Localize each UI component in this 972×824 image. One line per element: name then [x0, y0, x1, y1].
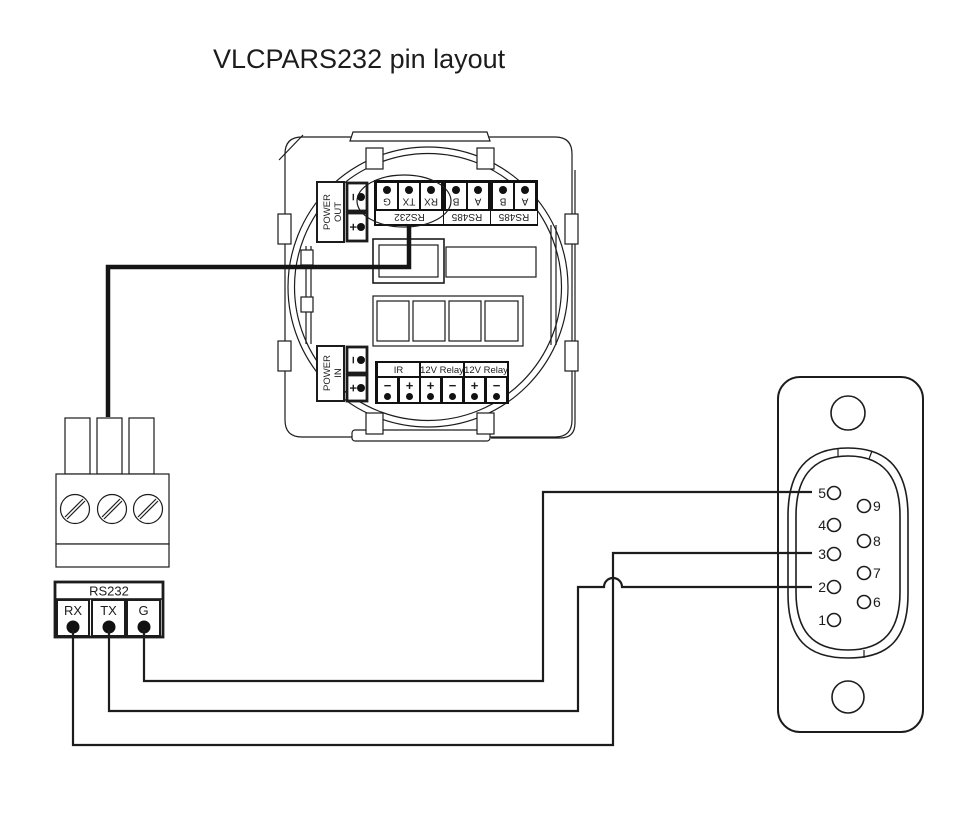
- db9-pin-hole-8: [858, 535, 871, 548]
- module-corner-chamfer: [279, 135, 303, 160]
- group-label-rs485-1: RS485: [451, 211, 482, 222]
- plug-pin-1: [65, 418, 90, 474]
- group-label-relay-2: 12V Relay: [464, 365, 508, 376]
- internal-slot-4: [485, 301, 518, 341]
- terminal-dot-g: [383, 186, 391, 194]
- terminal-label-g: G: [383, 196, 391, 207]
- relay1-minus-dot: [449, 393, 456, 400]
- rs232-breakout-block: RS232 RX TX G: [55, 582, 163, 637]
- right-side-tab-upper: [565, 214, 578, 244]
- right-side-tab-lower: [565, 341, 578, 371]
- group-label-rs485-2: RS485: [498, 211, 529, 222]
- diagram-title: VLCPARS232 pin layout: [213, 44, 506, 74]
- terminal-dot-rx: [427, 186, 435, 194]
- power-out-plus-dot: [357, 223, 365, 231]
- relay1-minus-symbol: −: [449, 378, 457, 393]
- relay2-plus-symbol: +: [471, 378, 479, 393]
- rs232-rs485-terminal-strip: G TX RX B A B A RS232 RS485 RS485: [374, 180, 538, 226]
- group-label-relay-1: 12V Relay: [420, 365, 464, 376]
- terminal-dot-b1: [452, 186, 460, 194]
- relay2-minus-dot: [493, 393, 500, 400]
- db9-pin-number-4: 4: [818, 517, 826, 533]
- wire-rx-to-db9-pin3: [73, 553, 812, 745]
- db9-pin-hole-1: [828, 614, 841, 627]
- db9-pin-number-1: 1: [818, 612, 826, 628]
- db9-pin-hole-9: [858, 500, 871, 513]
- wiring-diagram-page: VLCPARS232 pin layout: [0, 0, 972, 824]
- bottom-hook-right: [477, 413, 494, 434]
- ir-plus-dot: [406, 393, 413, 400]
- terminal-dot-a2: [521, 186, 529, 194]
- ir-relay-terminal-strip: IR 12V Relay 12V Relay − + + − + −: [375, 361, 509, 404]
- top-hook-right: [477, 148, 494, 169]
- db9-pin-number-8: 8: [873, 533, 881, 549]
- ir-minus-symbol: −: [384, 378, 392, 393]
- screw-terminal-block: [56, 418, 169, 567]
- terminal-label-a2: A: [521, 196, 528, 207]
- internal-compartment-row: [373, 296, 523, 346]
- ir-plus-symbol: +: [406, 378, 414, 393]
- db9-pin-hole-6: [858, 596, 871, 609]
- db9-pin-number-6: 6: [873, 594, 881, 610]
- db9-pin-hole-4: [828, 519, 841, 532]
- db9-pin-number-3: 3: [818, 546, 826, 562]
- power-out-label-2: OUT: [333, 202, 344, 222]
- internal-slot-2: [413, 301, 445, 341]
- terminal-dot-a1: [474, 186, 482, 194]
- breakout-label-tx: TX: [100, 603, 117, 618]
- terminal-label-a1: A: [474, 196, 481, 207]
- power-out-label-1: POWER: [322, 194, 333, 230]
- internal-clip-upper: [301, 250, 313, 265]
- group-label-ir: IR: [394, 365, 404, 376]
- group-label-rs232: RS232: [394, 211, 425, 222]
- terminal-label-b1: B: [452, 196, 459, 207]
- db9-connector: 5 4 3 2 1 9 8 7 6: [778, 377, 923, 732]
- power-in-minus-dot: [357, 356, 365, 364]
- top-mounting-tab: [350, 132, 490, 141]
- internal-clip-lower: [301, 297, 313, 312]
- breakout-label-g: G: [138, 603, 148, 618]
- left-side-tab-lower: [278, 341, 291, 371]
- ir-minus-dot: [384, 393, 391, 400]
- power-in-label-1: POWER: [322, 355, 333, 391]
- db9-pin-number-5: 5: [818, 485, 826, 501]
- bottom-hook-left: [366, 413, 383, 434]
- plug-pin-2: [97, 418, 122, 474]
- db9-pin-number-2: 2: [818, 579, 826, 595]
- db9-pin-hole-3: [828, 548, 841, 561]
- terminal-label-tx: TX: [402, 196, 415, 207]
- power-out-block: POWER OUT − +: [317, 182, 367, 242]
- db9-pin-hole-2: [828, 581, 841, 594]
- breakout-header-label: RS232: [89, 584, 129, 599]
- db9-screw-hole-bottom: [832, 681, 864, 713]
- plug-pin-3: [129, 418, 154, 474]
- relay2-plus-dot: [471, 393, 478, 400]
- left-side-tab-upper: [278, 214, 291, 244]
- internal-slot-1: [377, 301, 409, 341]
- db9-shell-notch-top-right: [869, 451, 872, 459]
- terminal-label-b2: B: [499, 196, 506, 207]
- relay1-plus-symbol: +: [427, 378, 435, 393]
- db9-pin-hole-5: [828, 487, 841, 500]
- terminal-dot-b2: [499, 186, 507, 194]
- top-hook-left: [366, 148, 383, 169]
- wiring-diagram: VLCPARS232 pin layout: [0, 0, 972, 824]
- db9-pin-number-9: 9: [873, 498, 881, 514]
- internal-compartment-b: [446, 247, 536, 277]
- terminal-label-rx: RX: [424, 196, 438, 207]
- plug-base: [56, 544, 169, 567]
- terminal-dot-tx: [405, 186, 413, 194]
- db9-pin-hole-7: [858, 567, 871, 580]
- relay1-plus-dot: [427, 393, 434, 400]
- db9-screw-hole-top: [831, 396, 865, 430]
- wall-module: POWER OUT − + G TX RX B A B A: [278, 132, 578, 441]
- power-in-label-2: IN: [333, 368, 344, 378]
- power-in-block: POWER IN − +: [317, 346, 367, 401]
- relay2-minus-symbol: −: [493, 378, 501, 393]
- power-in-plus-dot: [357, 384, 365, 392]
- breakout-label-rx: RX: [64, 603, 82, 618]
- internal-slot-3: [449, 301, 481, 341]
- wire-tx-to-db9-pin2: [109, 578, 812, 711]
- db9-pin-number-7: 7: [873, 565, 881, 581]
